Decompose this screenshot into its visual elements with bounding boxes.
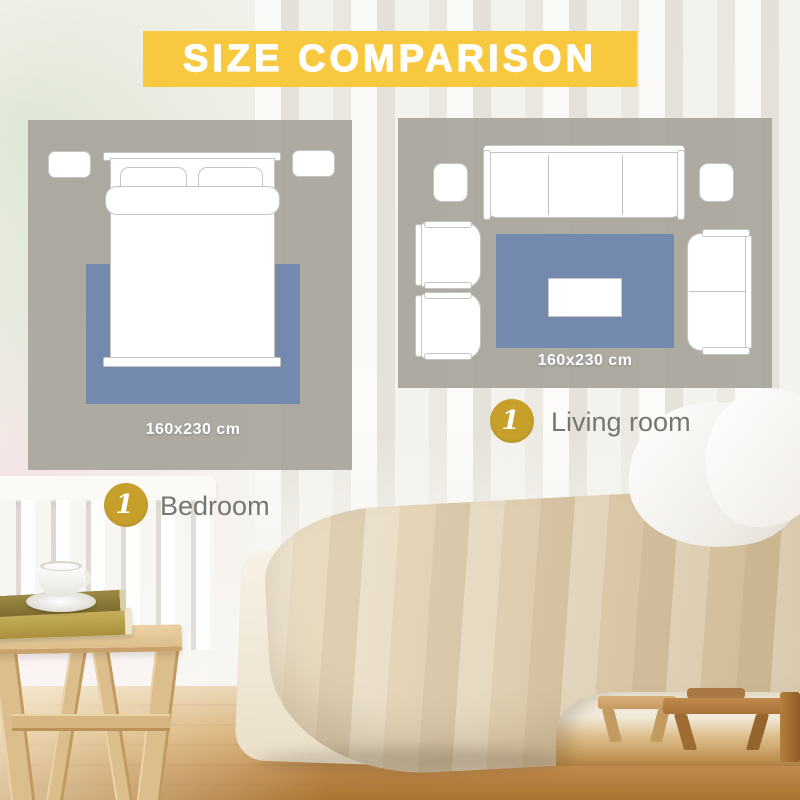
room-name-label: Bedroom <box>160 491 270 522</box>
sofa-icon <box>483 145 685 239</box>
step-badge: 1 <box>104 483 148 527</box>
armchair-armrest <box>424 353 472 360</box>
product-size-comparison-image: SIZE COMPARISON 160x230 cm <box>0 0 800 800</box>
side-table-icon <box>699 163 734 202</box>
stool-leg <box>602 709 622 742</box>
armchair-armrest <box>424 221 472 228</box>
armchair-back <box>415 295 422 357</box>
armchair-seat <box>420 293 481 359</box>
loveseat-seat <box>687 233 747 351</box>
rug-size-label: 160x230 cm <box>146 421 241 439</box>
armchair-armrest <box>424 282 472 289</box>
stool-leg <box>674 714 697 750</box>
sofa-seat-divider <box>548 155 549 215</box>
loveseat-back <box>745 235 752 349</box>
armchair-back <box>415 224 422 286</box>
rug-size-label: 160x230 cm <box>538 352 633 370</box>
stool-leg <box>746 714 769 750</box>
armchair-seat <box>420 222 481 288</box>
living-room-floorplan-panel: 160x230 cm <box>398 118 772 388</box>
bed-shadow <box>255 748 565 774</box>
badge-number: 1 <box>115 492 136 518</box>
badge-number: 1 <box>501 408 522 434</box>
coffee-table-icon <box>548 278 622 317</box>
sofa-seat <box>485 152 683 218</box>
side-table-icon <box>433 163 468 202</box>
step-badge: 1 <box>490 399 534 443</box>
loveseat-seat-divider <box>689 291 745 292</box>
nightstand-icon <box>48 151 91 178</box>
loveseat-armrest <box>702 229 750 237</box>
bedroom-floorplan-panel: 160x230 cm <box>28 120 352 470</box>
sofa-armrest <box>483 150 491 220</box>
sofa-armrest <box>677 150 685 220</box>
bed-footboard-icon <box>103 357 281 367</box>
size-comparison-banner: SIZE COMPARISON <box>143 31 637 87</box>
duvet-icon <box>105 186 280 215</box>
loveseat-icon <box>687 229 752 355</box>
stool-seat <box>663 698 783 714</box>
loveseat-armrest <box>702 347 750 355</box>
sofa-seat-divider <box>622 155 623 215</box>
banner-title: SIZE COMPARISON <box>183 38 597 81</box>
nightstand-icon <box>292 150 335 177</box>
bed-leg <box>780 692 800 762</box>
step-stool <box>663 688 783 760</box>
cup-rim-inner <box>43 563 79 570</box>
armchair-armrest <box>424 292 472 299</box>
armchair-icon <box>415 293 481 359</box>
table-stretcher <box>12 714 170 731</box>
armchair-icon <box>415 222 481 288</box>
room-name-label: Living room <box>551 407 691 438</box>
